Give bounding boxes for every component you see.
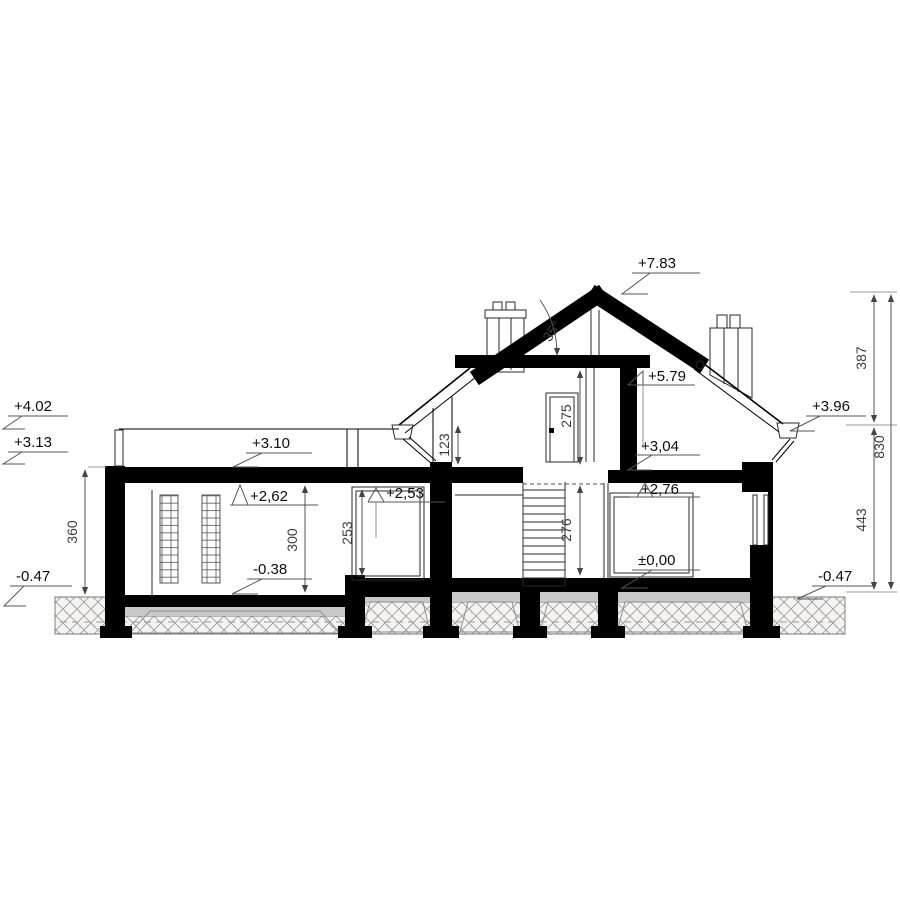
level-minus-0-47-right: -0.47 xyxy=(797,568,876,599)
svg-text:-0.47: -0.47 xyxy=(818,568,852,585)
masonry-pier-right xyxy=(202,495,220,583)
level-plus-3-10: +3.10 xyxy=(233,435,312,467)
level-plus-3-96: +3.96 xyxy=(790,398,866,431)
svg-text:+5.79: +5.79 xyxy=(648,368,686,385)
garage-floor-slab xyxy=(105,595,352,607)
dim-830: 830 xyxy=(871,435,887,459)
eave-left xyxy=(392,368,476,464)
window-sill-wall xyxy=(352,578,432,597)
main-left-wall xyxy=(430,462,452,592)
level-plus-4-02: +4.02 xyxy=(3,398,68,429)
architectural-section-sheet: 35° 360 300 2 xyxy=(0,0,900,900)
dim-253: 253 xyxy=(339,521,355,545)
section-drawing: 35° 360 300 2 xyxy=(0,0,900,900)
dim-123: 123 xyxy=(436,433,452,457)
gutter-left xyxy=(392,425,413,439)
level-plus-5-79: +5.79 xyxy=(628,368,695,448)
garage-left-wall xyxy=(105,466,125,607)
svg-text:-0.47: -0.47 xyxy=(16,568,50,585)
svg-text:+7.83: +7.83 xyxy=(638,255,676,272)
collar-beam xyxy=(455,355,650,368)
dim-443: 443 xyxy=(853,508,869,532)
ceiling-slab-left xyxy=(105,467,523,483)
dim-276: 276 xyxy=(558,518,574,542)
level-plus-3-13: +3.13 xyxy=(3,434,68,464)
svg-text:+3.96: +3.96 xyxy=(812,398,850,415)
level-plus-3-04: +3,04 xyxy=(628,438,700,470)
dim-387: 387 xyxy=(853,346,869,370)
level-plus-7-83: +7.83 xyxy=(622,255,700,294)
parapet-post xyxy=(115,430,123,466)
right-wall-window xyxy=(753,495,768,545)
svg-text:+3.13: +3.13 xyxy=(14,434,52,451)
ridge-beam xyxy=(589,293,604,305)
level-plus-2-76: +2,76 xyxy=(630,481,700,498)
dim-360: 360 xyxy=(64,520,80,544)
rafter-right xyxy=(597,296,698,362)
dim-275: 275 xyxy=(558,404,574,428)
ground-floor-slab xyxy=(452,578,773,592)
svg-text:+2,76: +2,76 xyxy=(641,481,679,498)
svg-text:+4.02: +4.02 xyxy=(14,398,52,415)
roof-section: 35° xyxy=(392,293,799,464)
svg-text:+2,62: +2,62 xyxy=(250,488,288,505)
svg-text:-0.38: -0.38 xyxy=(253,561,287,578)
svg-text:+2,53: +2,53 xyxy=(386,485,424,502)
svg-text:±0,00: ±0,00 xyxy=(638,552,675,569)
svg-text:+3.10: +3.10 xyxy=(252,435,290,452)
door-handle xyxy=(549,428,554,433)
masonry-pier-left xyxy=(160,495,178,583)
svg-text:+3,04: +3,04 xyxy=(641,438,679,455)
dim-300: 300 xyxy=(284,528,300,552)
level-minus-0-38: -0.38 xyxy=(232,561,312,594)
